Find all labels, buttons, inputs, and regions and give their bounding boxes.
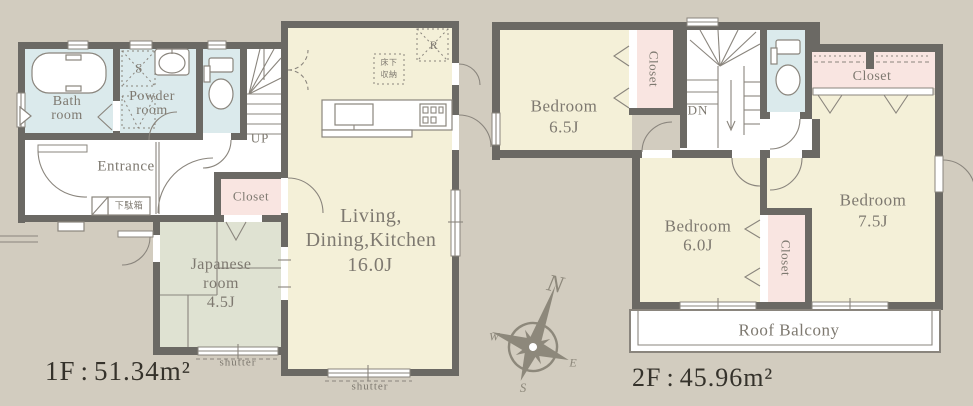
floor-plan-drawing — [0, 0, 973, 406]
powder-room-label-2: room — [136, 104, 168, 118]
bedroom-60-label: Bedroom — [665, 218, 732, 235]
storage-s-label: S — [135, 62, 143, 75]
area-2f-value: 45.96 — [680, 363, 744, 392]
area-label-2f: 2F:45.96m² — [632, 363, 773, 393]
stairs-down-label: DN — [688, 104, 709, 117]
area-2f-colon: : — [666, 363, 674, 392]
powder-sink-icon — [155, 49, 189, 75]
shutter-label-japanese: shutter — [220, 358, 257, 369]
bedroom-75-label: Bedroom — [840, 192, 907, 209]
bedroom-65-size: 6.5J — [549, 119, 579, 136]
entrance-label: Entrance — [97, 160, 154, 175]
underfloor-storage-label-2: 収納 — [381, 71, 398, 79]
area-1f-floor: 1F — [45, 356, 76, 386]
bedroom-65-label: Bedroom — [531, 98, 598, 115]
area-1f-unit: m² — [160, 356, 191, 386]
closet-1f-label: Closet — [233, 190, 269, 203]
japanese-room-label-2: room — [203, 276, 239, 292]
compass-south-label: S — [520, 380, 527, 396]
bedroom-75-size: 7.5J — [858, 213, 888, 230]
japanese-room-size: 4.5J — [207, 295, 235, 311]
bedroom-60-size: 6.0J — [683, 237, 713, 254]
powder-room-label: Powder — [129, 90, 175, 104]
area-1f-value: 51.34 — [94, 356, 160, 386]
japanese-room-label: Japanese — [191, 257, 252, 273]
area-2f-floor: 2F — [632, 363, 661, 392]
area-1f-colon: : — [81, 356, 90, 386]
compass-west-label: W — [489, 330, 499, 345]
compass-east-label: E — [569, 356, 576, 371]
closet-mid-label: Closet — [780, 240, 793, 276]
bath-room-label: Bath — [53, 95, 81, 109]
closet-north-label: Closet — [853, 70, 892, 84]
bath-room-label-2: room — [51, 109, 83, 123]
refrigerator-label: R — [430, 39, 439, 51]
ldk-size: 16.0J — [347, 255, 392, 275]
area-2f-unit: m² — [743, 363, 773, 392]
closet-west-label: Closet — [648, 51, 661, 87]
roof-balcony-label: Roof Balcony — [739, 322, 840, 339]
underfloor-storage-label: 床下 — [381, 59, 398, 67]
area-label-1f: 1F:51.34m² — [45, 356, 191, 387]
shutter-label-ldk: shutter — [352, 382, 389, 393]
floor-plan: Bath room Powder room S Entrance 下駄箱 UP … — [0, 0, 973, 406]
ldk-label: Living, — [340, 206, 402, 226]
stairs-up-label: UP — [251, 132, 270, 145]
shoe-cabinet-label: 下駄箱 — [115, 202, 144, 211]
ldk-label-2: Dining,Kitchen — [306, 230, 437, 250]
